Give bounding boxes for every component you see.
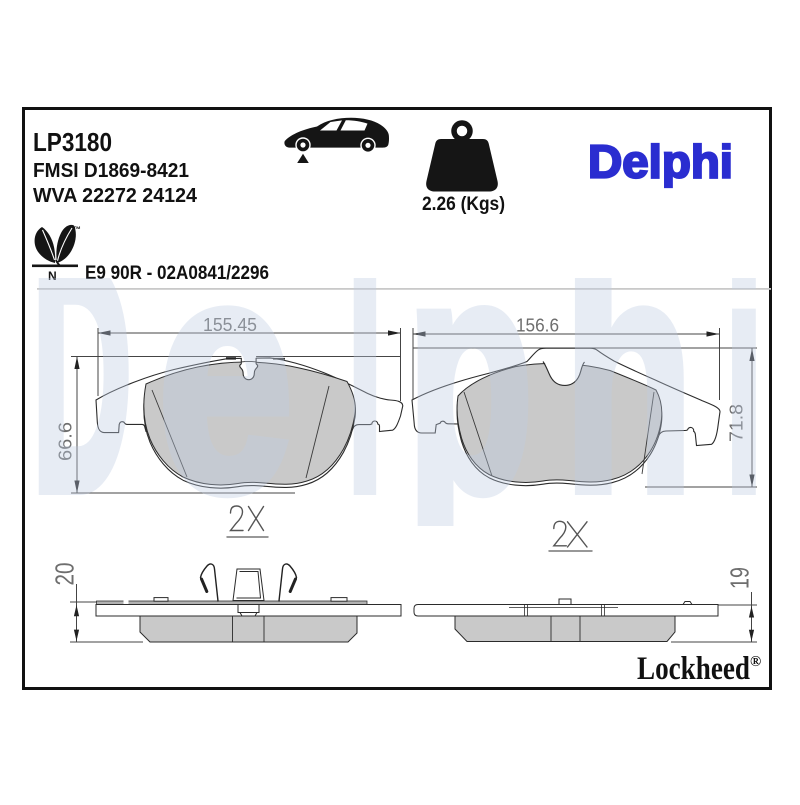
- svg-text:Delphi: Delphi: [588, 136, 733, 188]
- svg-text:19: 19: [725, 567, 755, 589]
- svg-text:™: ™: [73, 225, 81, 234]
- svg-text:WVA 22272 24124: WVA 22272 24124: [33, 185, 198, 207]
- svg-text:2.26 (Kgs): 2.26 (Kgs): [422, 194, 505, 215]
- svg-text:20: 20: [50, 563, 80, 586]
- svg-text:l: l: [347, 190, 383, 559]
- svg-text:FMSI D1869-8421: FMSI D1869-8421: [33, 160, 189, 182]
- svg-text:i: i: [725, 190, 763, 559]
- svg-text:LP3180: LP3180: [33, 127, 112, 157]
- svg-text:h: h: [564, 190, 693, 559]
- svg-text:Lockheed: Lockheed: [637, 651, 750, 687]
- svg-text:®: ®: [750, 654, 761, 670]
- svg-text:e: e: [158, 190, 293, 559]
- svg-text:p: p: [407, 190, 533, 561]
